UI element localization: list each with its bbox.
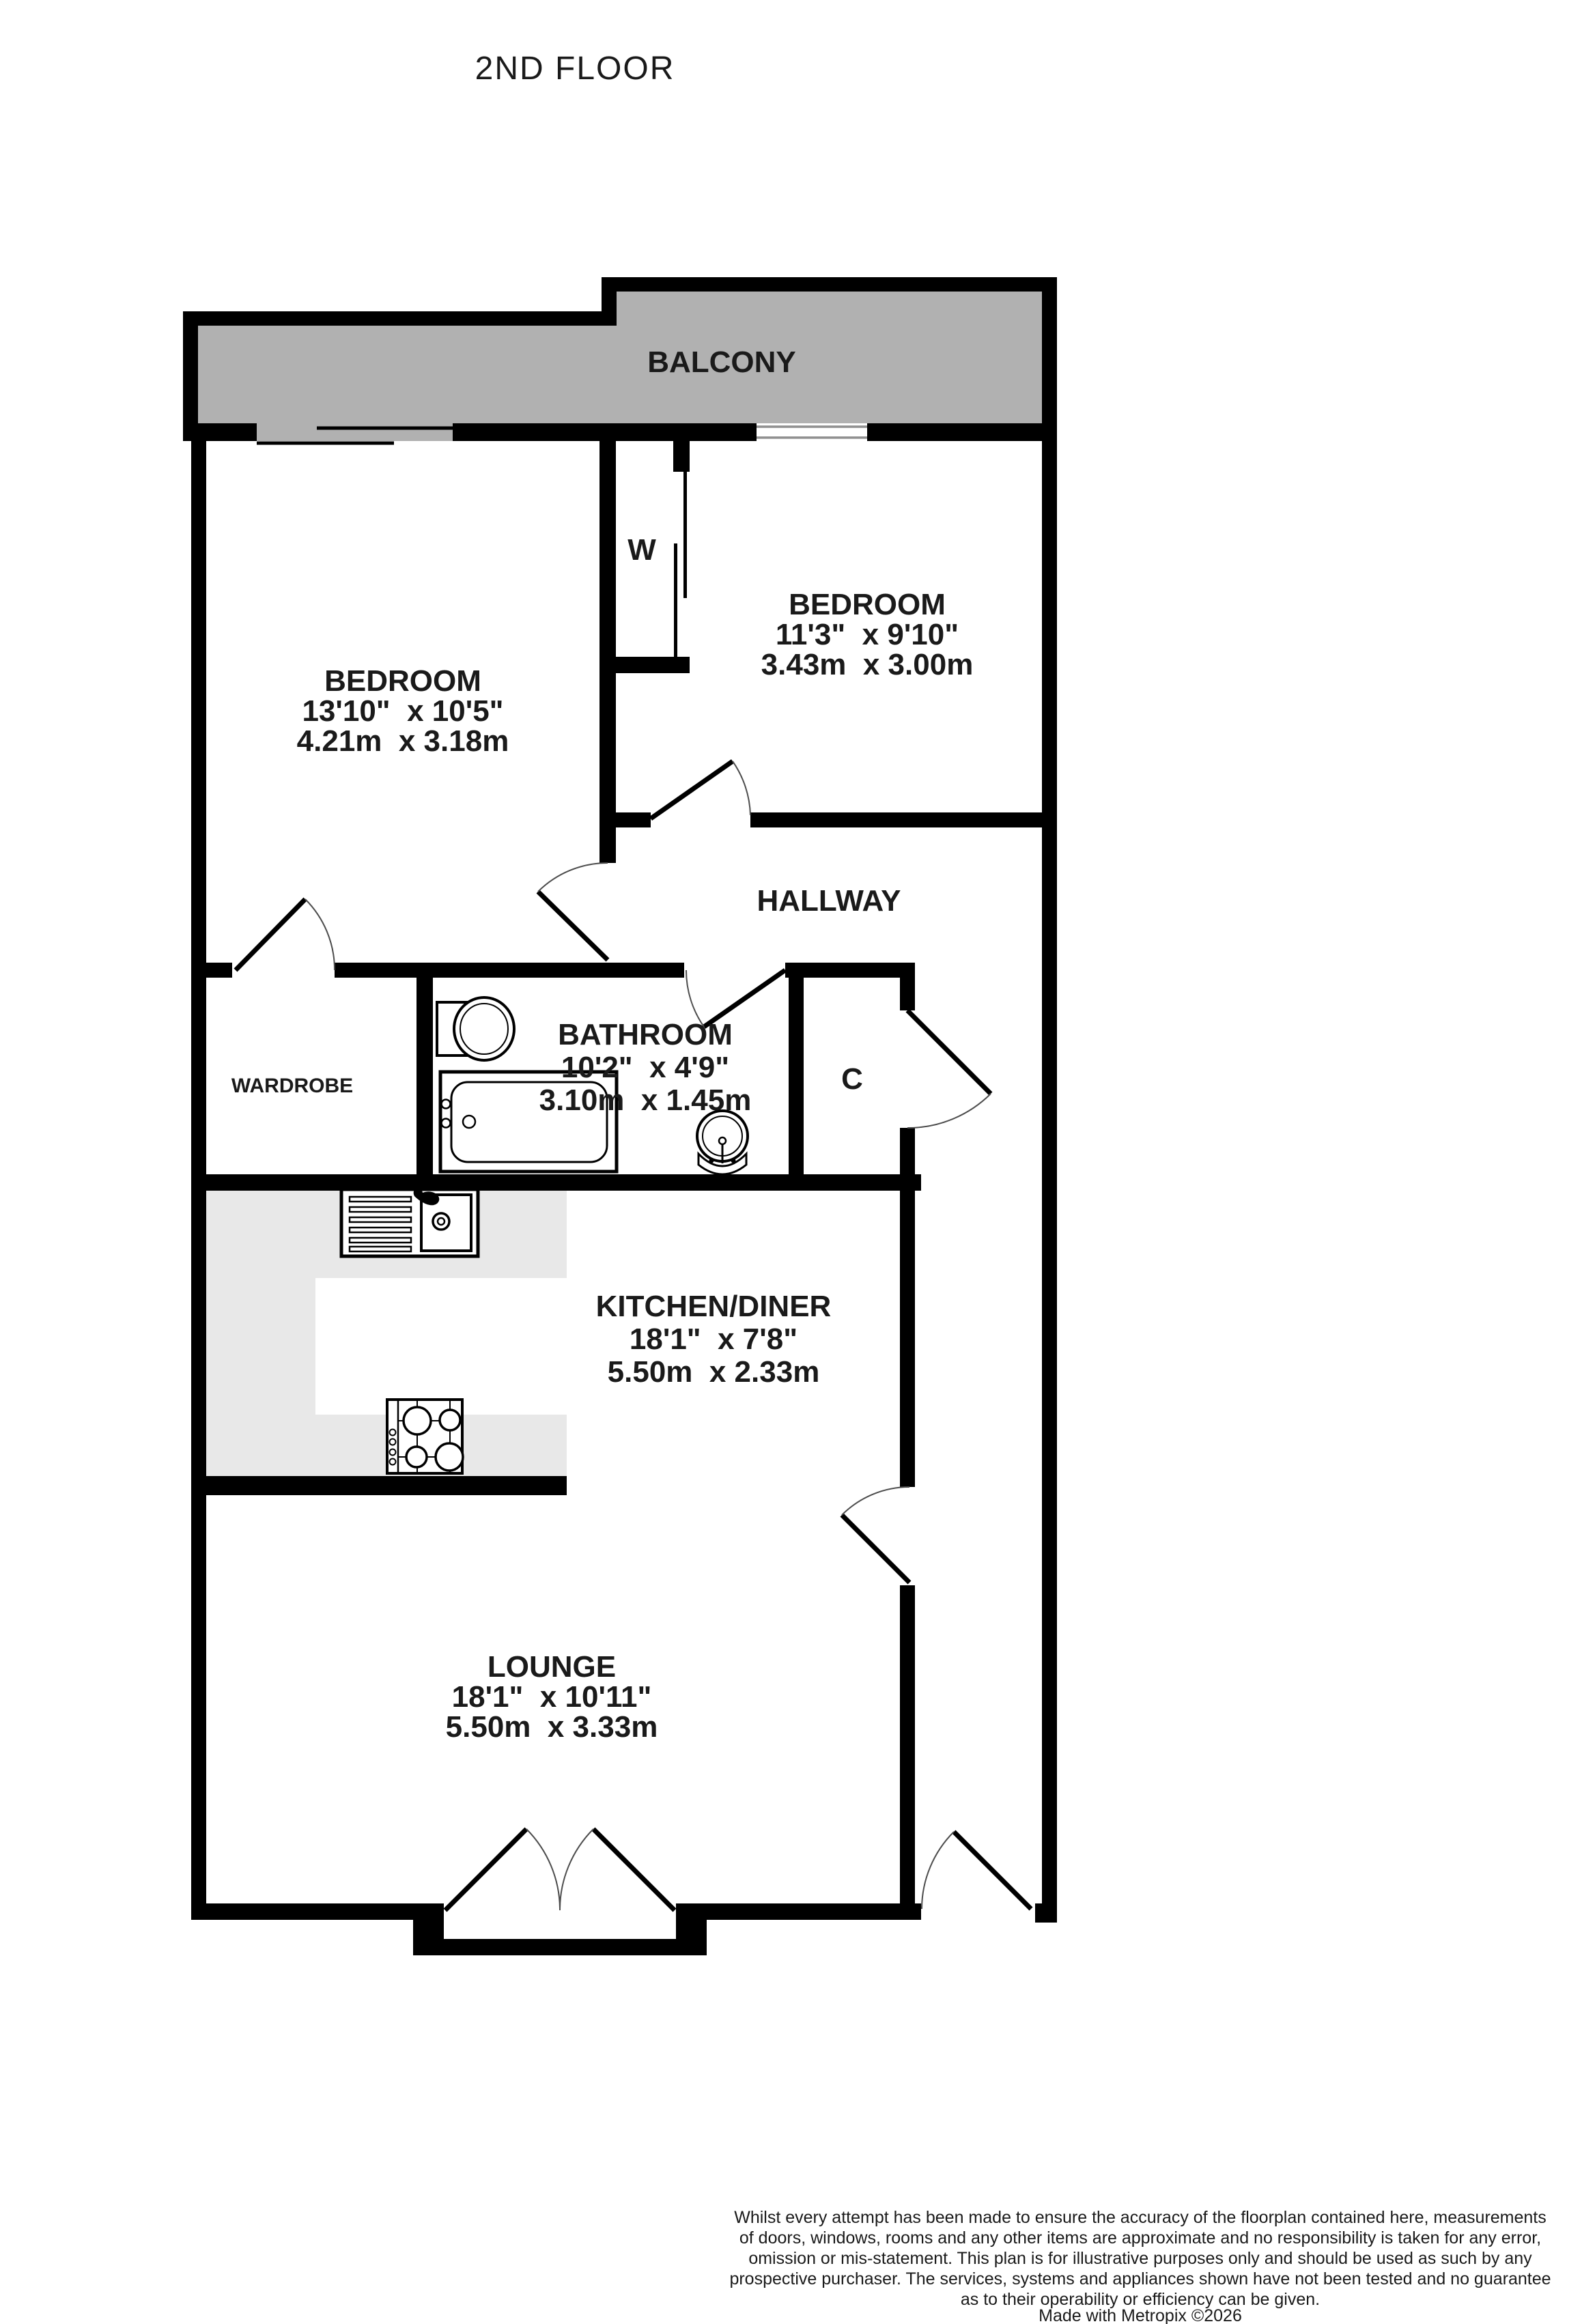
footer-disclaimer-line-3: omission or mis-statement. This plan is … <box>748 2249 1532 2268</box>
footer-disclaimer: Whilst every attempt has been made to en… <box>729 2208 1551 2324</box>
door-leaf-lounge <box>842 1515 909 1583</box>
wall <box>335 963 684 978</box>
room-label-bedroom-2: BEDROOM <box>789 588 946 621</box>
footer-disclaimer-line-2: of doors, windows, rooms and any other i… <box>739 2228 1541 2248</box>
wall <box>413 1939 707 1955</box>
dim-metric-kitchen: 5.50m x 2.33m <box>608 1355 820 1389</box>
dim-metric-bathroom: 3.10m x 1.45m <box>539 1083 752 1117</box>
wall <box>750 812 1057 827</box>
wall <box>206 963 232 978</box>
toilet <box>697 1111 748 1174</box>
wall <box>417 978 433 1174</box>
wall <box>602 277 1057 292</box>
dim-imperial-bedroom-2: 11'3" x 9'10" <box>776 618 959 651</box>
wardrobe-sliding-door-line <box>683 472 687 598</box>
wall <box>867 423 1057 441</box>
basin-bowl-inner <box>460 1004 508 1054</box>
balcony-threshold <box>257 423 453 441</box>
wall <box>673 438 690 472</box>
wall <box>1042 425 1057 1921</box>
wall <box>183 311 617 326</box>
wall <box>900 1585 915 1903</box>
dim-metric-bedroom-2: 3.43m x 3.00m <box>761 648 974 681</box>
door-leaf-entrance <box>954 1832 1031 1909</box>
wall <box>900 1191 915 1487</box>
wall <box>789 978 804 1174</box>
door-arc-wardrobe <box>305 899 335 970</box>
floor-title: 2ND FLOOR <box>475 51 675 87</box>
counter <box>206 1278 315 1476</box>
room-label-bedroom-1: BEDROOM <box>324 664 481 698</box>
wall <box>900 978 915 1010</box>
room-label-balcony: BALCONY <box>647 345 796 379</box>
room-label-closet-w: W <box>627 533 656 567</box>
footer-disclaimer-line-1: Whilst every attempt has been made to en… <box>734 2208 1547 2227</box>
room-label-bathroom: BATHROOM <box>558 1018 733 1051</box>
room-label-wardrobe: WARDROBE <box>231 1075 353 1097</box>
room-label-cupboard-c: C <box>841 1062 863 1096</box>
door-arc-french-right <box>560 1829 593 1910</box>
wall <box>191 1476 567 1495</box>
wall <box>191 1903 444 1920</box>
wall <box>1042 277 1057 425</box>
hob <box>387 1400 463 1473</box>
wall <box>900 1128 915 1174</box>
kitchen-sink <box>341 1189 478 1256</box>
toilet-detail <box>731 1159 736 1163</box>
room-label-lounge: LOUNGE <box>488 1650 616 1684</box>
wall <box>599 812 651 827</box>
door-arc-bedroom-2 <box>733 761 750 815</box>
dim-metric-bedroom-1: 4.21m x 3.18m <box>297 724 509 758</box>
dim-imperial-lounge: 18'1" x 10'11" <box>452 1680 652 1714</box>
door-arc-lounge <box>842 1487 909 1515</box>
dim-imperial-bedroom-1: 13'10" x 10'5" <box>302 694 503 728</box>
room-label-kitchen: KITCHEN/DINER <box>596 1290 832 1323</box>
wall <box>206 1174 921 1191</box>
dim-imperial-kitchen: 18'1" x 7'8" <box>630 1322 797 1356</box>
floorplan-page: 2ND FLOOR BALCONY BEDROOM 13'10" x 10'5"… <box>0 0 1595 2324</box>
bathtub-tap <box>442 1100 451 1109</box>
sink-drain-inner <box>438 1218 444 1225</box>
door-leaf-cupboard <box>907 1010 991 1094</box>
door-arc-cupboard <box>907 1094 991 1128</box>
wall <box>1035 1903 1057 1923</box>
wall <box>676 1920 707 1940</box>
footer-credit: Made with Metropix ©2026 <box>1039 2306 1242 2324</box>
door-arc-bedroom-1 <box>538 863 608 892</box>
door-leaf-french-right <box>593 1829 675 1910</box>
wall <box>191 423 206 1920</box>
door-arc-entrance <box>922 1832 954 1909</box>
wall <box>599 438 616 863</box>
wall <box>785 963 915 978</box>
wall <box>676 1903 921 1920</box>
wash-basin <box>437 997 514 1060</box>
dim-metric-lounge: 5.50m x 3.33m <box>446 1710 658 1744</box>
door-leaf-bedroom-1 <box>538 892 608 960</box>
room-label-hallway: HALLWAY <box>757 884 901 918</box>
door-leaf-french-left <box>445 1829 526 1910</box>
door-leaf-bedroom-2 <box>651 761 733 819</box>
toilet-detail <box>709 1159 714 1163</box>
bathtub-drain <box>463 1116 475 1128</box>
floorplan-svg: 2ND FLOOR BALCONY BEDROOM 13'10" x 10'5"… <box>0 0 1595 2324</box>
door-leaf-wardrobe <box>236 899 305 970</box>
wall <box>413 1920 444 1940</box>
toilet-flush-knob <box>719 1137 726 1144</box>
dim-imperial-bathroom: 10'2" x 4'9" <box>561 1051 729 1084</box>
wardrobe-sliding-door-line <box>674 543 677 657</box>
footer-disclaimer-line-4: prospective purchaser. The services, sys… <box>729 2269 1551 2288</box>
wall <box>183 311 198 425</box>
bathtub-tap <box>442 1119 451 1128</box>
wall <box>599 657 690 673</box>
door-arc-french-left <box>526 1829 560 1910</box>
